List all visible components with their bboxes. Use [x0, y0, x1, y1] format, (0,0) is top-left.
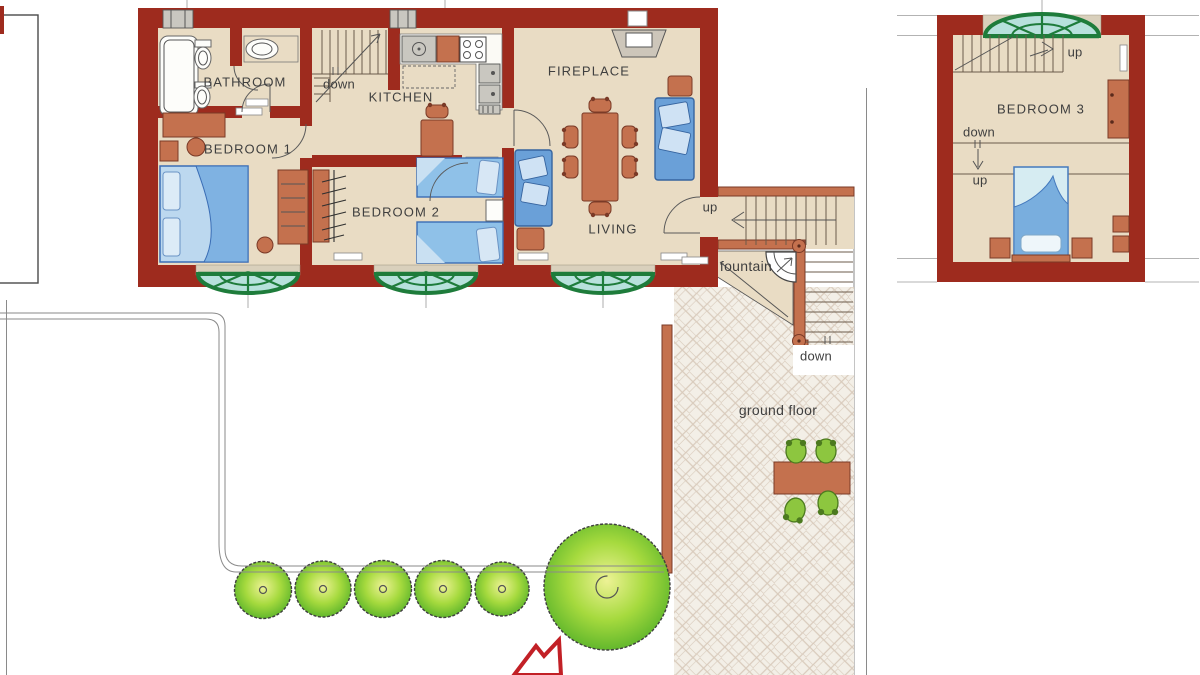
- nightstand: [486, 200, 503, 221]
- tree: [235, 562, 292, 619]
- nightstand: [1072, 238, 1092, 258]
- north-arrow-icon: [514, 640, 561, 675]
- pillow: [476, 160, 500, 195]
- tree: [355, 561, 412, 618]
- toilet: [195, 47, 211, 69]
- pillow: [1021, 235, 1061, 252]
- vent-window: [163, 10, 193, 28]
- washbasin: [246, 39, 278, 59]
- wall-window: [1120, 45, 1127, 71]
- pillow: [163, 218, 180, 256]
- dining-table: [582, 113, 618, 201]
- stove: [460, 37, 486, 62]
- bay-window-1: [196, 265, 300, 293]
- kitchen-table: [421, 120, 453, 156]
- large-tree: [544, 524, 670, 650]
- sink-basin: [479, 85, 500, 103]
- b3-up-label: up: [973, 173, 988, 188]
- ground-floor-label: ground floor: [739, 402, 817, 418]
- b3-up-top-label: up: [1068, 45, 1083, 60]
- patio-table: [774, 462, 850, 494]
- sink-basin: [479, 64, 500, 83]
- stool: [257, 237, 273, 253]
- bedroom2-label: BEDROOM 2: [352, 205, 440, 220]
- dining-chair: [622, 126, 638, 148]
- chimney: [628, 11, 647, 26]
- stairs-up-label: up: [703, 200, 718, 215]
- stairs-down-label: down: [323, 77, 355, 92]
- living-label: LIVING: [588, 222, 637, 237]
- armchair: [668, 76, 692, 96]
- dining-chair: [562, 156, 578, 178]
- kitchen-label: KITCHEN: [369, 90, 434, 105]
- tree: [415, 561, 472, 618]
- bedroom3-label: BEDROOM 3: [997, 102, 1085, 117]
- dresser: [1108, 80, 1129, 138]
- neighbor-wall-sliver: [0, 6, 4, 34]
- stool: [187, 138, 205, 156]
- tree: [475, 562, 529, 616]
- armchair: [517, 228, 544, 250]
- garden-path-line: [0, 313, 664, 566]
- desk: [163, 113, 225, 137]
- floor-plan-page: BATHROOM BEDROOM 1 KITCHEN BEDROOM 2 FIR…: [0, 0, 1200, 675]
- stairs-down-ext-label: down: [800, 349, 832, 364]
- bed-footboard: [1012, 255, 1070, 262]
- bathroom-label: BATHROOM: [204, 75, 287, 90]
- b3-down-label: down: [963, 125, 995, 140]
- bay-window-3: [551, 265, 655, 293]
- chest: [1113, 216, 1129, 232]
- tree-row: [235, 524, 671, 650]
- chest: [1113, 236, 1129, 252]
- kitchen-cabinet: [437, 36, 459, 62]
- garden-path-line: [0, 319, 664, 572]
- fountain-label: fountain: [720, 258, 772, 274]
- fireplace-label: FIREPLACE: [548, 64, 630, 79]
- bay-window-2: [374, 265, 478, 293]
- pillow: [163, 172, 180, 210]
- cushion: [520, 182, 549, 206]
- bedroom3-building: [937, 14, 1145, 282]
- garden: [0, 313, 670, 650]
- dining-chair: [589, 202, 611, 217]
- cushion: [658, 102, 690, 129]
- garden-wall-strip: [662, 325, 672, 573]
- wardrobe: [278, 170, 308, 244]
- tree: [295, 561, 351, 617]
- pillow: [476, 227, 500, 262]
- kitchen-chair: [426, 103, 448, 118]
- dining-chair: [589, 97, 611, 112]
- nightstand: [990, 238, 1010, 258]
- bedroom1-label: BEDROOM 1: [204, 142, 292, 157]
- drain-board: [479, 105, 500, 114]
- bathtub: [160, 36, 198, 116]
- dining-chair: [622, 156, 638, 178]
- neighbor-structure: [0, 15, 38, 283]
- vent-window: [390, 10, 416, 28]
- dining-chair: [562, 126, 578, 148]
